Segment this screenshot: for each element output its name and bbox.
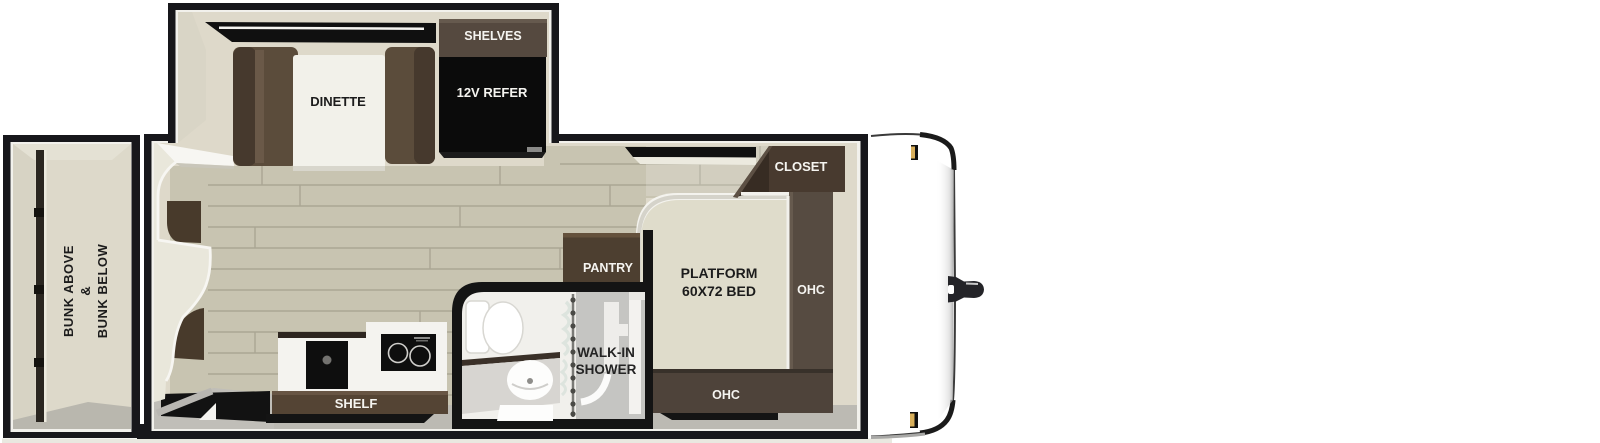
svg-text:SHELF: SHELF	[335, 396, 378, 411]
svg-text:BUNK BELOW: BUNK BELOW	[95, 243, 110, 338]
svg-text:BUNK ABOVE: BUNK ABOVE	[61, 245, 76, 337]
svg-text:WALK-IN: WALK-IN	[577, 345, 635, 360]
svg-text:PLATFORM: PLATFORM	[681, 265, 758, 281]
svg-text:OHC: OHC	[712, 388, 740, 402]
svg-text:12V REFER: 12V REFER	[457, 85, 528, 100]
svg-text:SHOWER: SHOWER	[576, 362, 637, 377]
svg-text:&: &	[78, 286, 93, 295]
svg-text:SHELVES: SHELVES	[464, 29, 521, 43]
svg-text:PANTRY: PANTRY	[583, 261, 634, 275]
svg-text:OHC: OHC	[797, 283, 825, 297]
svg-text:DINETTE: DINETTE	[310, 94, 366, 109]
svg-text:60X72 BED: 60X72 BED	[682, 283, 756, 299]
svg-text:CLOSET: CLOSET	[775, 159, 828, 174]
